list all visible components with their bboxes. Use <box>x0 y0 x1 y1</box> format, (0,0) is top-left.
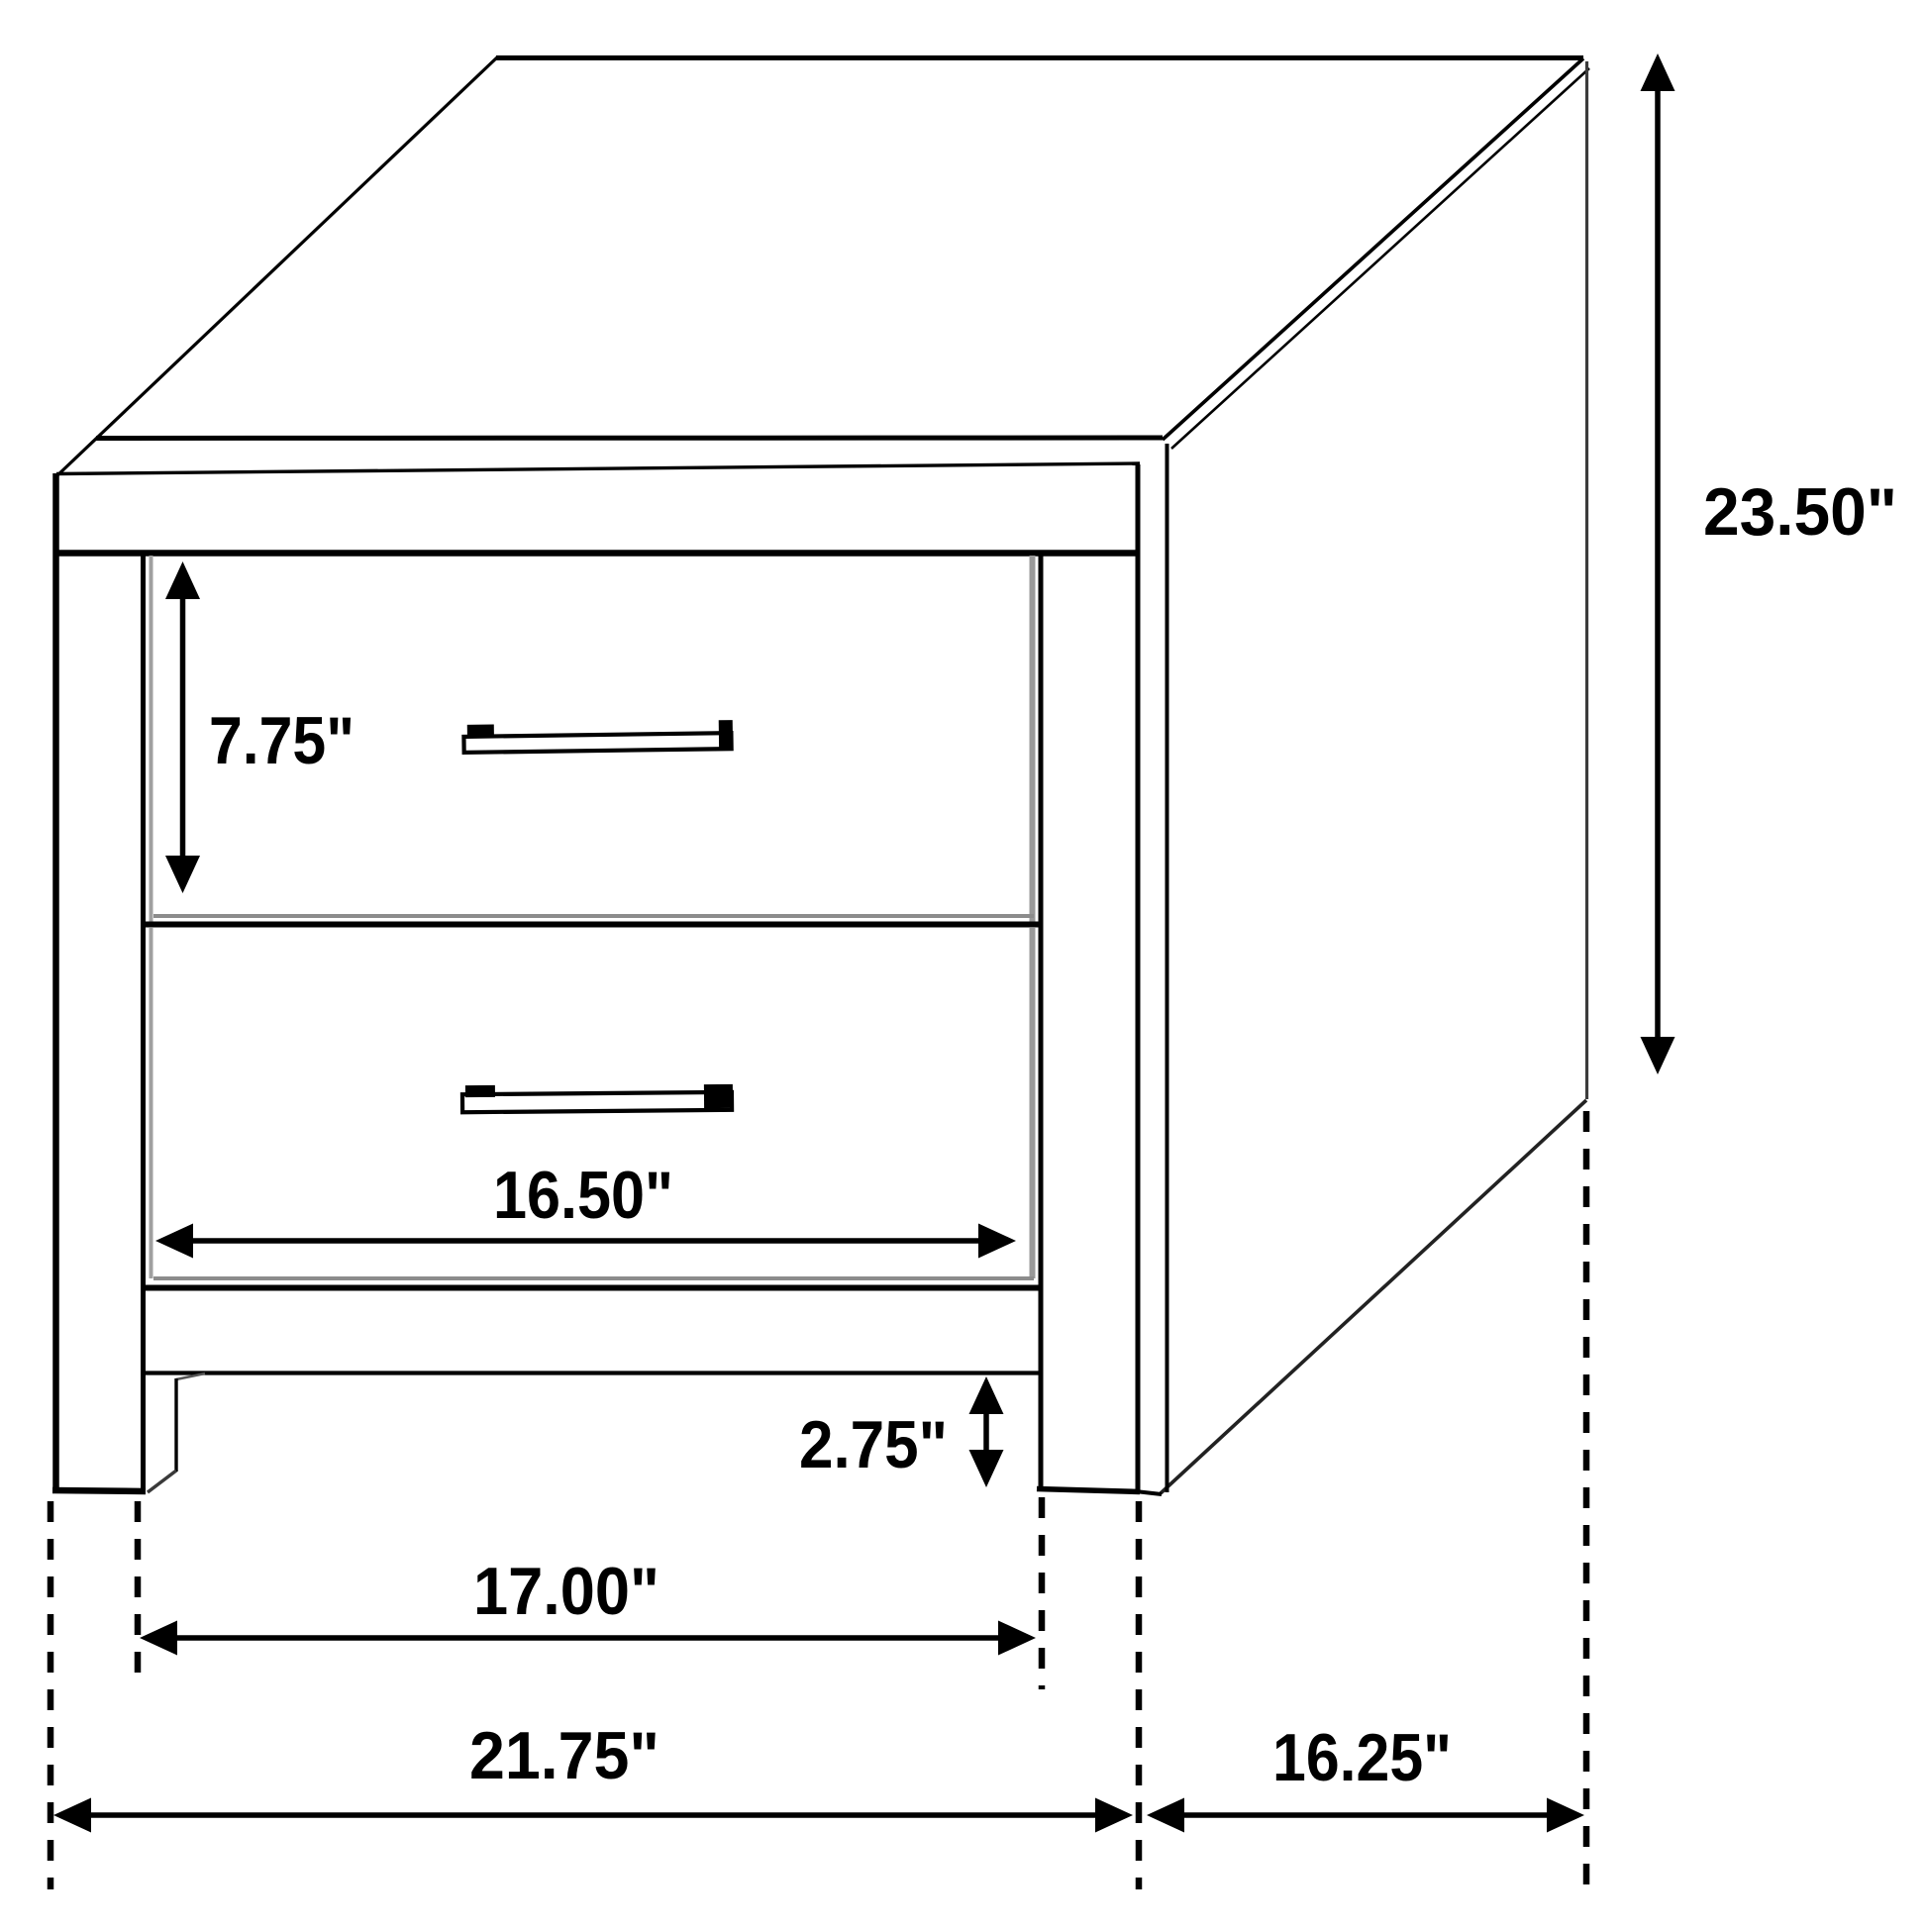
svg-text:17.00": 17.00" <box>473 1554 659 1629</box>
svg-text:16.50": 16.50" <box>493 1158 673 1233</box>
svg-text:21.75": 21.75" <box>469 1718 659 1793</box>
svg-text:7.75": 7.75" <box>209 703 355 778</box>
svg-text:2.75": 2.75" <box>799 1407 948 1482</box>
svg-text:23.50": 23.50" <box>1703 474 1897 550</box>
svg-text:16.25": 16.25" <box>1272 1720 1452 1795</box>
